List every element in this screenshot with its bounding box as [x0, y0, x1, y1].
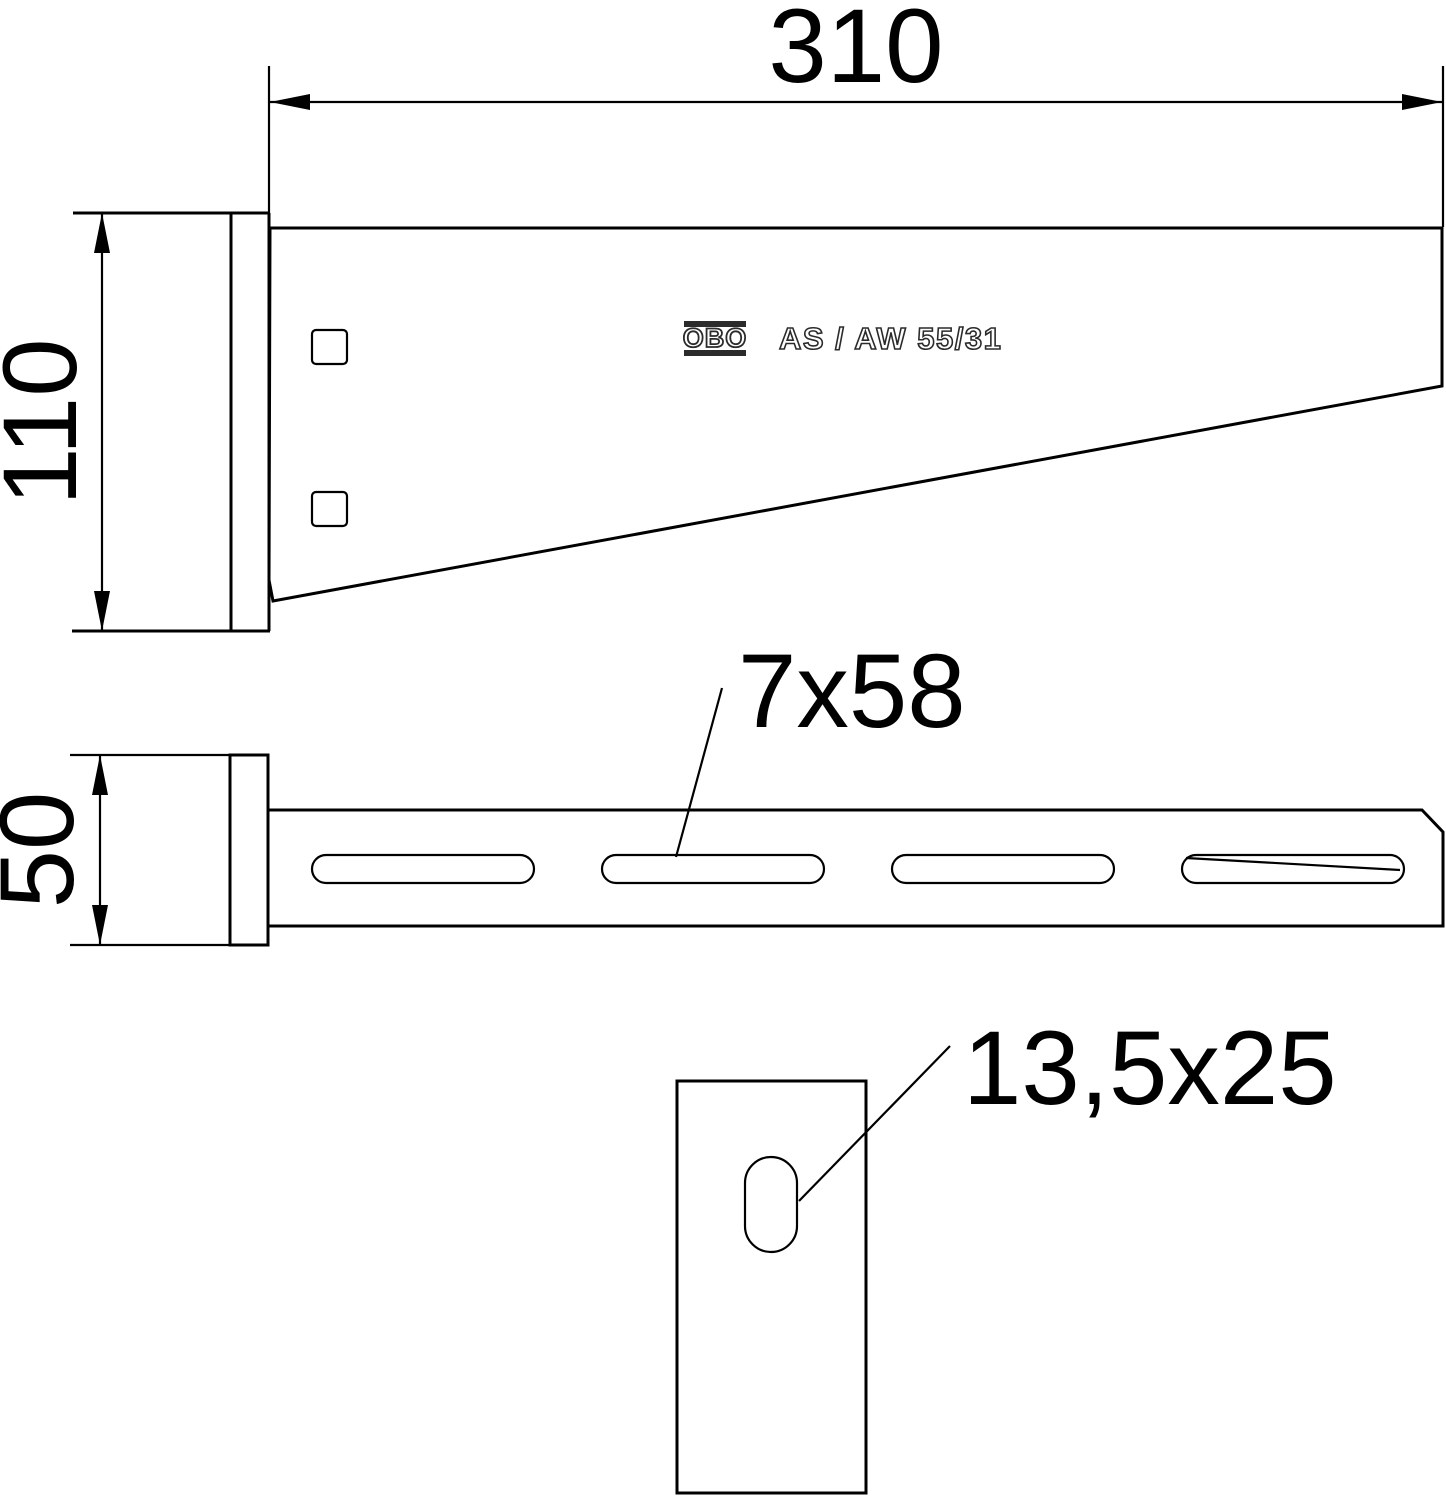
dim-310-label: 310 — [768, 0, 943, 105]
front-view: 13,5x25 — [677, 1010, 1337, 1493]
wall-slot-callout: 13,5x25 — [799, 1010, 1337, 1201]
side-view: OBO AS / AW 55/31 310 110 — [0, 0, 1443, 631]
wall-plate-front — [677, 1081, 866, 1493]
technical-drawing-page: OBO AS / AW 55/31 310 110 — [0, 0, 1446, 1500]
bracket-arm-outline — [269, 228, 1442, 601]
dimension-50: 50 — [0, 755, 268, 945]
product-stamp: AS / AW 55/31 — [779, 321, 1002, 356]
slot-label: 7x58 — [738, 633, 966, 750]
arm-top-outline — [268, 810, 1443, 926]
dimension-110: 110 — [0, 213, 110, 631]
dimension-310: 310 — [269, 0, 1443, 227]
dim-110-label: 110 — [0, 338, 99, 505]
wall-slot-label: 13,5x25 — [963, 1010, 1337, 1127]
obo-logo-text: OBO — [683, 323, 748, 353]
wall-plate-top — [230, 755, 268, 945]
dim-50-label: 50 — [0, 792, 96, 909]
top-view: 50 7x58 — [0, 633, 1443, 945]
obo-logo: OBO — [683, 321, 748, 356]
